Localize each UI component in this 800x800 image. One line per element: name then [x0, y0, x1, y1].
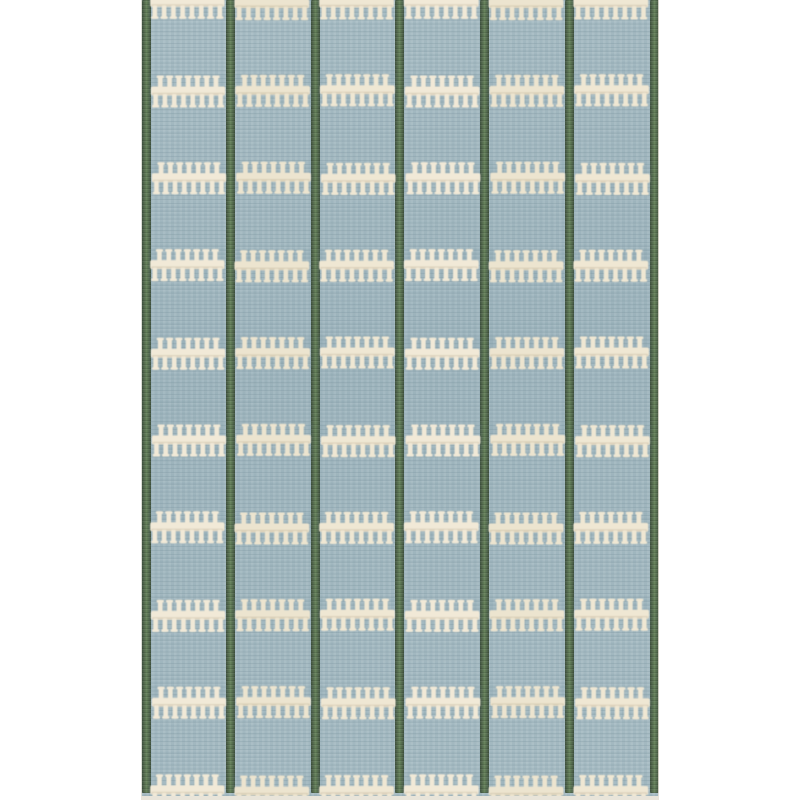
stitch-band-cell [318, 335, 397, 369]
stitch-band-cell [317, 0, 396, 20]
stitch-band-cell [149, 336, 227, 370]
photo-canvas [0, 0, 800, 800]
stitch-band-cell [319, 686, 398, 720]
stitch-band-cell [319, 161, 398, 195]
stitch-band-cell [488, 422, 567, 456]
stitch-band-cell [572, 73, 651, 107]
rug-stitch-pattern [141, 0, 659, 800]
stitch-band-cell [234, 685, 313, 719]
stitch-band-cell [572, 597, 651, 631]
stitch-band-cell [488, 598, 567, 632]
stitch-band-cell [148, 248, 226, 282]
stitch-band-cell [318, 73, 397, 107]
stitch-band-cell [233, 73, 312, 107]
stitch-band-cell [571, 510, 650, 544]
stitch-band-cell [573, 161, 652, 195]
stitch-band-cell [404, 685, 483, 719]
stitch-band-cell [232, 511, 311, 545]
stitch-band-cell [234, 422, 313, 456]
stitch-band-cell [317, 248, 396, 282]
stitch-band-cell [571, 0, 650, 20]
stitch-band-cell [488, 336, 567, 370]
stitch-band-cell [150, 423, 228, 457]
rug-selvage-right [658, 0, 659, 800]
stitch-band-cell [233, 598, 312, 632]
stitch-band-cell [149, 598, 227, 632]
stitch-band-cell [403, 598, 482, 632]
stitch-band-cell [572, 335, 651, 369]
stitch-band-cell [232, 249, 311, 283]
stitch-band-cell [573, 424, 652, 458]
stitch-band-cell [403, 74, 482, 108]
stitch-band-cell [487, 511, 566, 545]
stitch-band-cell [487, 0, 566, 21]
stitch-band-cell [148, 0, 226, 19]
rug-selvage-bottom [141, 796, 659, 800]
rug-selvage-left [141, 0, 142, 800]
stitch-band-cell [149, 74, 227, 108]
stitch-band-cell [150, 161, 228, 195]
stitch-band-cell [488, 685, 567, 719]
stitch-band-cell [402, 510, 481, 544]
stitch-band-cell [319, 424, 398, 458]
rug-photo [141, 0, 659, 800]
stitch-band-cell [403, 336, 482, 370]
stitch-band-cell [488, 160, 567, 194]
stitch-band-cell [404, 423, 483, 457]
stitch-band-cell [573, 686, 652, 720]
stitch-band-cell [571, 248, 650, 282]
stitch-band-cell [402, 248, 481, 282]
stitch-band-cell [488, 73, 567, 107]
stitch-band-cell [402, 0, 481, 19]
stitch-band-cell [234, 160, 313, 194]
stitch-band-cell [317, 510, 396, 544]
stitch-band-cell [318, 597, 397, 631]
stitch-band-cell [487, 249, 566, 283]
stitch-band-cell [148, 510, 226, 544]
stitch-band-cell [233, 336, 312, 370]
stitch-band-cell [150, 685, 228, 719]
stitch-band-cell [404, 161, 483, 195]
stitch-band-cell [232, 0, 311, 21]
